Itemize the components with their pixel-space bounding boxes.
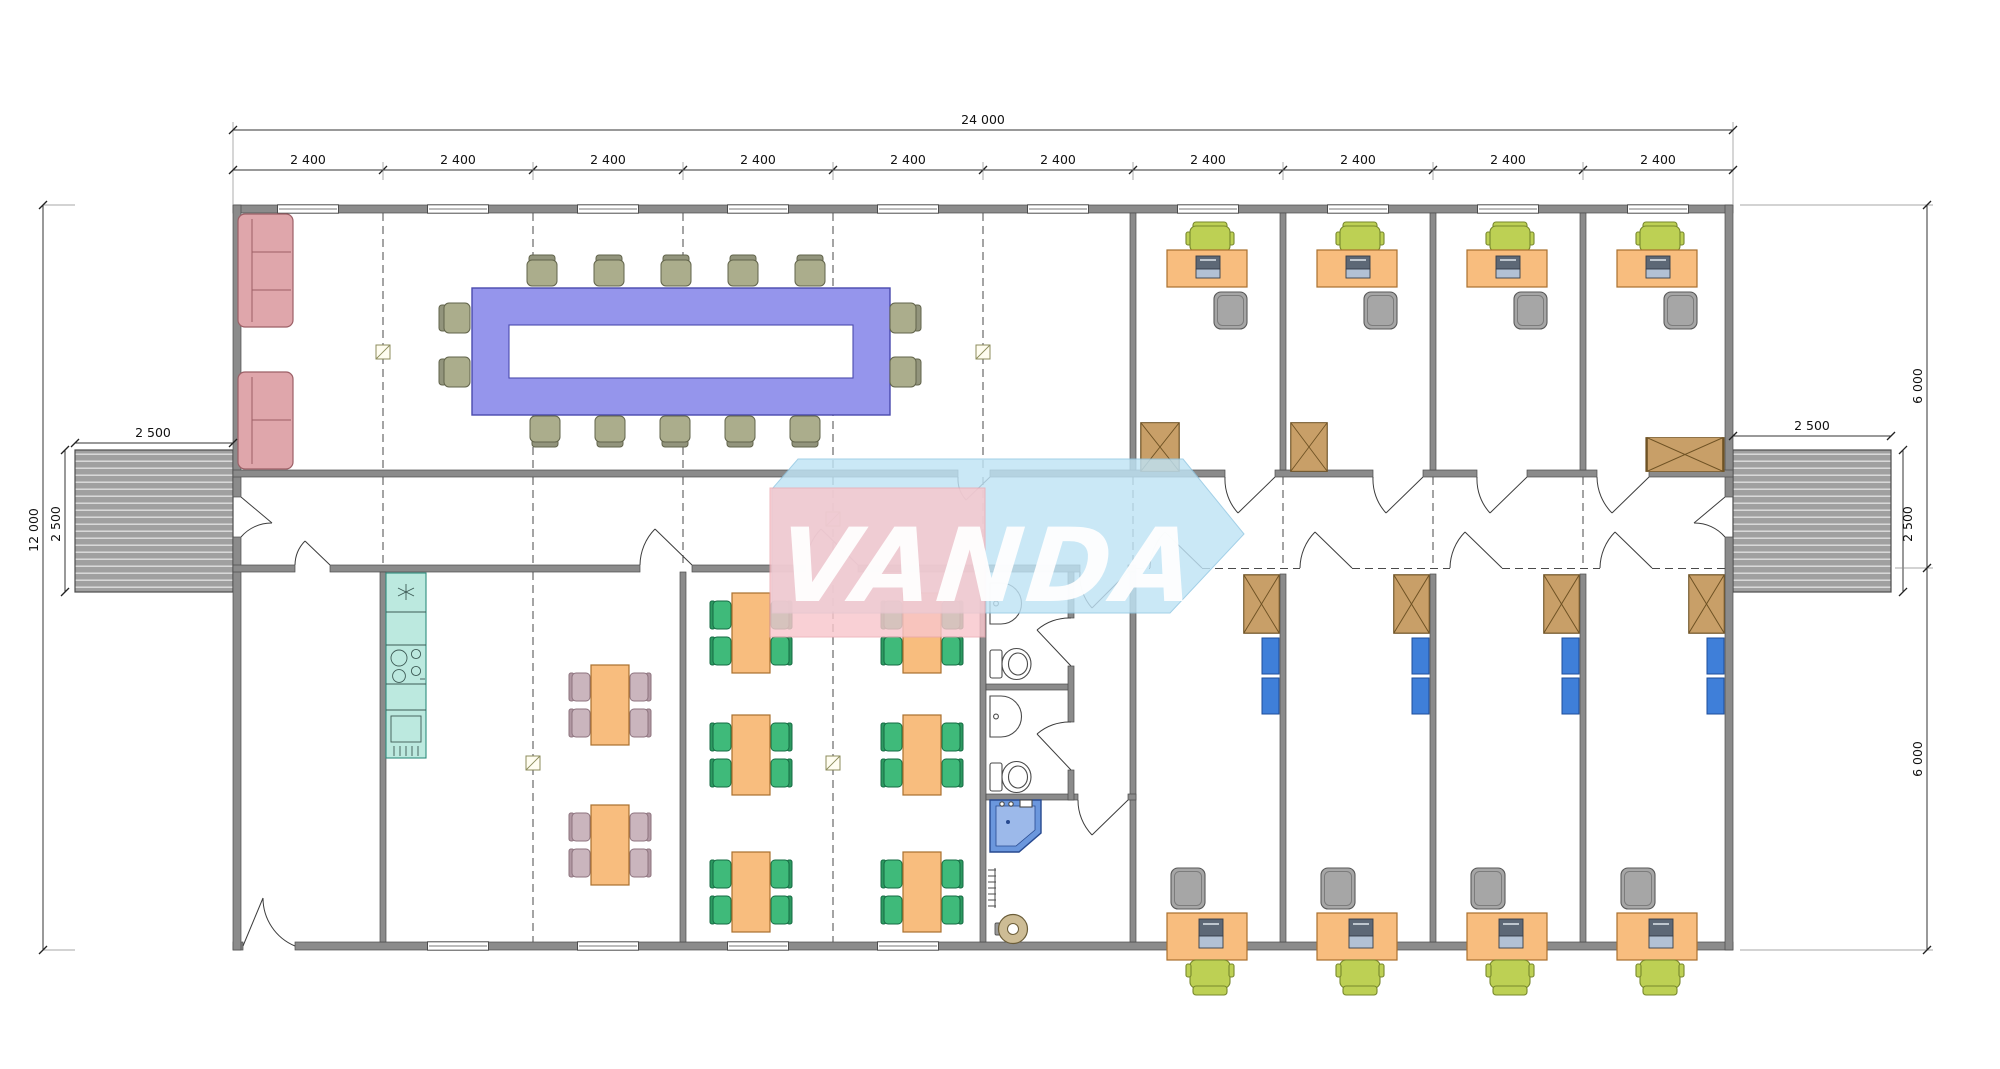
floor-plan-page: VANDA 24 000 2 400 2 400 2 400 bbox=[0, 0, 2000, 1069]
dim-module: 2 400 bbox=[290, 152, 326, 167]
dim-module: 2 400 bbox=[440, 152, 476, 167]
dim-overall-height: 12 000 bbox=[26, 508, 41, 552]
dim-module: 2 400 bbox=[1190, 152, 1226, 167]
entrance-ramp-left bbox=[75, 450, 233, 592]
dim-lower-section: 6 000 bbox=[1910, 741, 1925, 777]
dim-module: 2 400 bbox=[1490, 152, 1526, 167]
dim-module: 2 400 bbox=[1040, 152, 1076, 167]
floor-plan-drawing: VANDA 24 000 2 400 2 400 2 400 bbox=[0, 0, 2000, 1069]
wardrobe bbox=[1544, 575, 1580, 633]
dim-ramp-depth-right: 2 500 bbox=[1900, 506, 1915, 542]
dim-module: 2 400 bbox=[1640, 152, 1676, 167]
wardrobe bbox=[1291, 423, 1327, 472]
dim-module: 2 400 bbox=[740, 152, 776, 167]
wardrobe bbox=[1244, 575, 1280, 633]
kitchenette bbox=[386, 573, 426, 758]
dim-ramp-depth-left: 2 500 bbox=[48, 506, 63, 542]
sofa bbox=[238, 214, 293, 327]
conference-table bbox=[472, 288, 890, 415]
dim-module: 2 400 bbox=[890, 152, 926, 167]
dim-upper-section: 6 000 bbox=[1910, 368, 1925, 404]
dim-ramp-width-left: 2 500 bbox=[135, 425, 171, 440]
dim-overall-width: 24 000 bbox=[961, 112, 1005, 127]
vanda-watermark: VANDA bbox=[770, 459, 1244, 637]
module-extension-stubs bbox=[383, 162, 1583, 180]
dim-module: 2 400 bbox=[590, 152, 626, 167]
wardrobe bbox=[1689, 575, 1725, 633]
dim-ramp-width-right: 2 500 bbox=[1794, 418, 1830, 433]
sofa bbox=[238, 372, 293, 469]
watermark-text: VANDA bbox=[772, 507, 1204, 626]
entrance-ramp-right bbox=[1733, 450, 1891, 592]
wardrobe-wide bbox=[1647, 437, 1724, 471]
dim-module: 2 400 bbox=[1340, 152, 1376, 167]
wardrobe bbox=[1394, 575, 1430, 633]
